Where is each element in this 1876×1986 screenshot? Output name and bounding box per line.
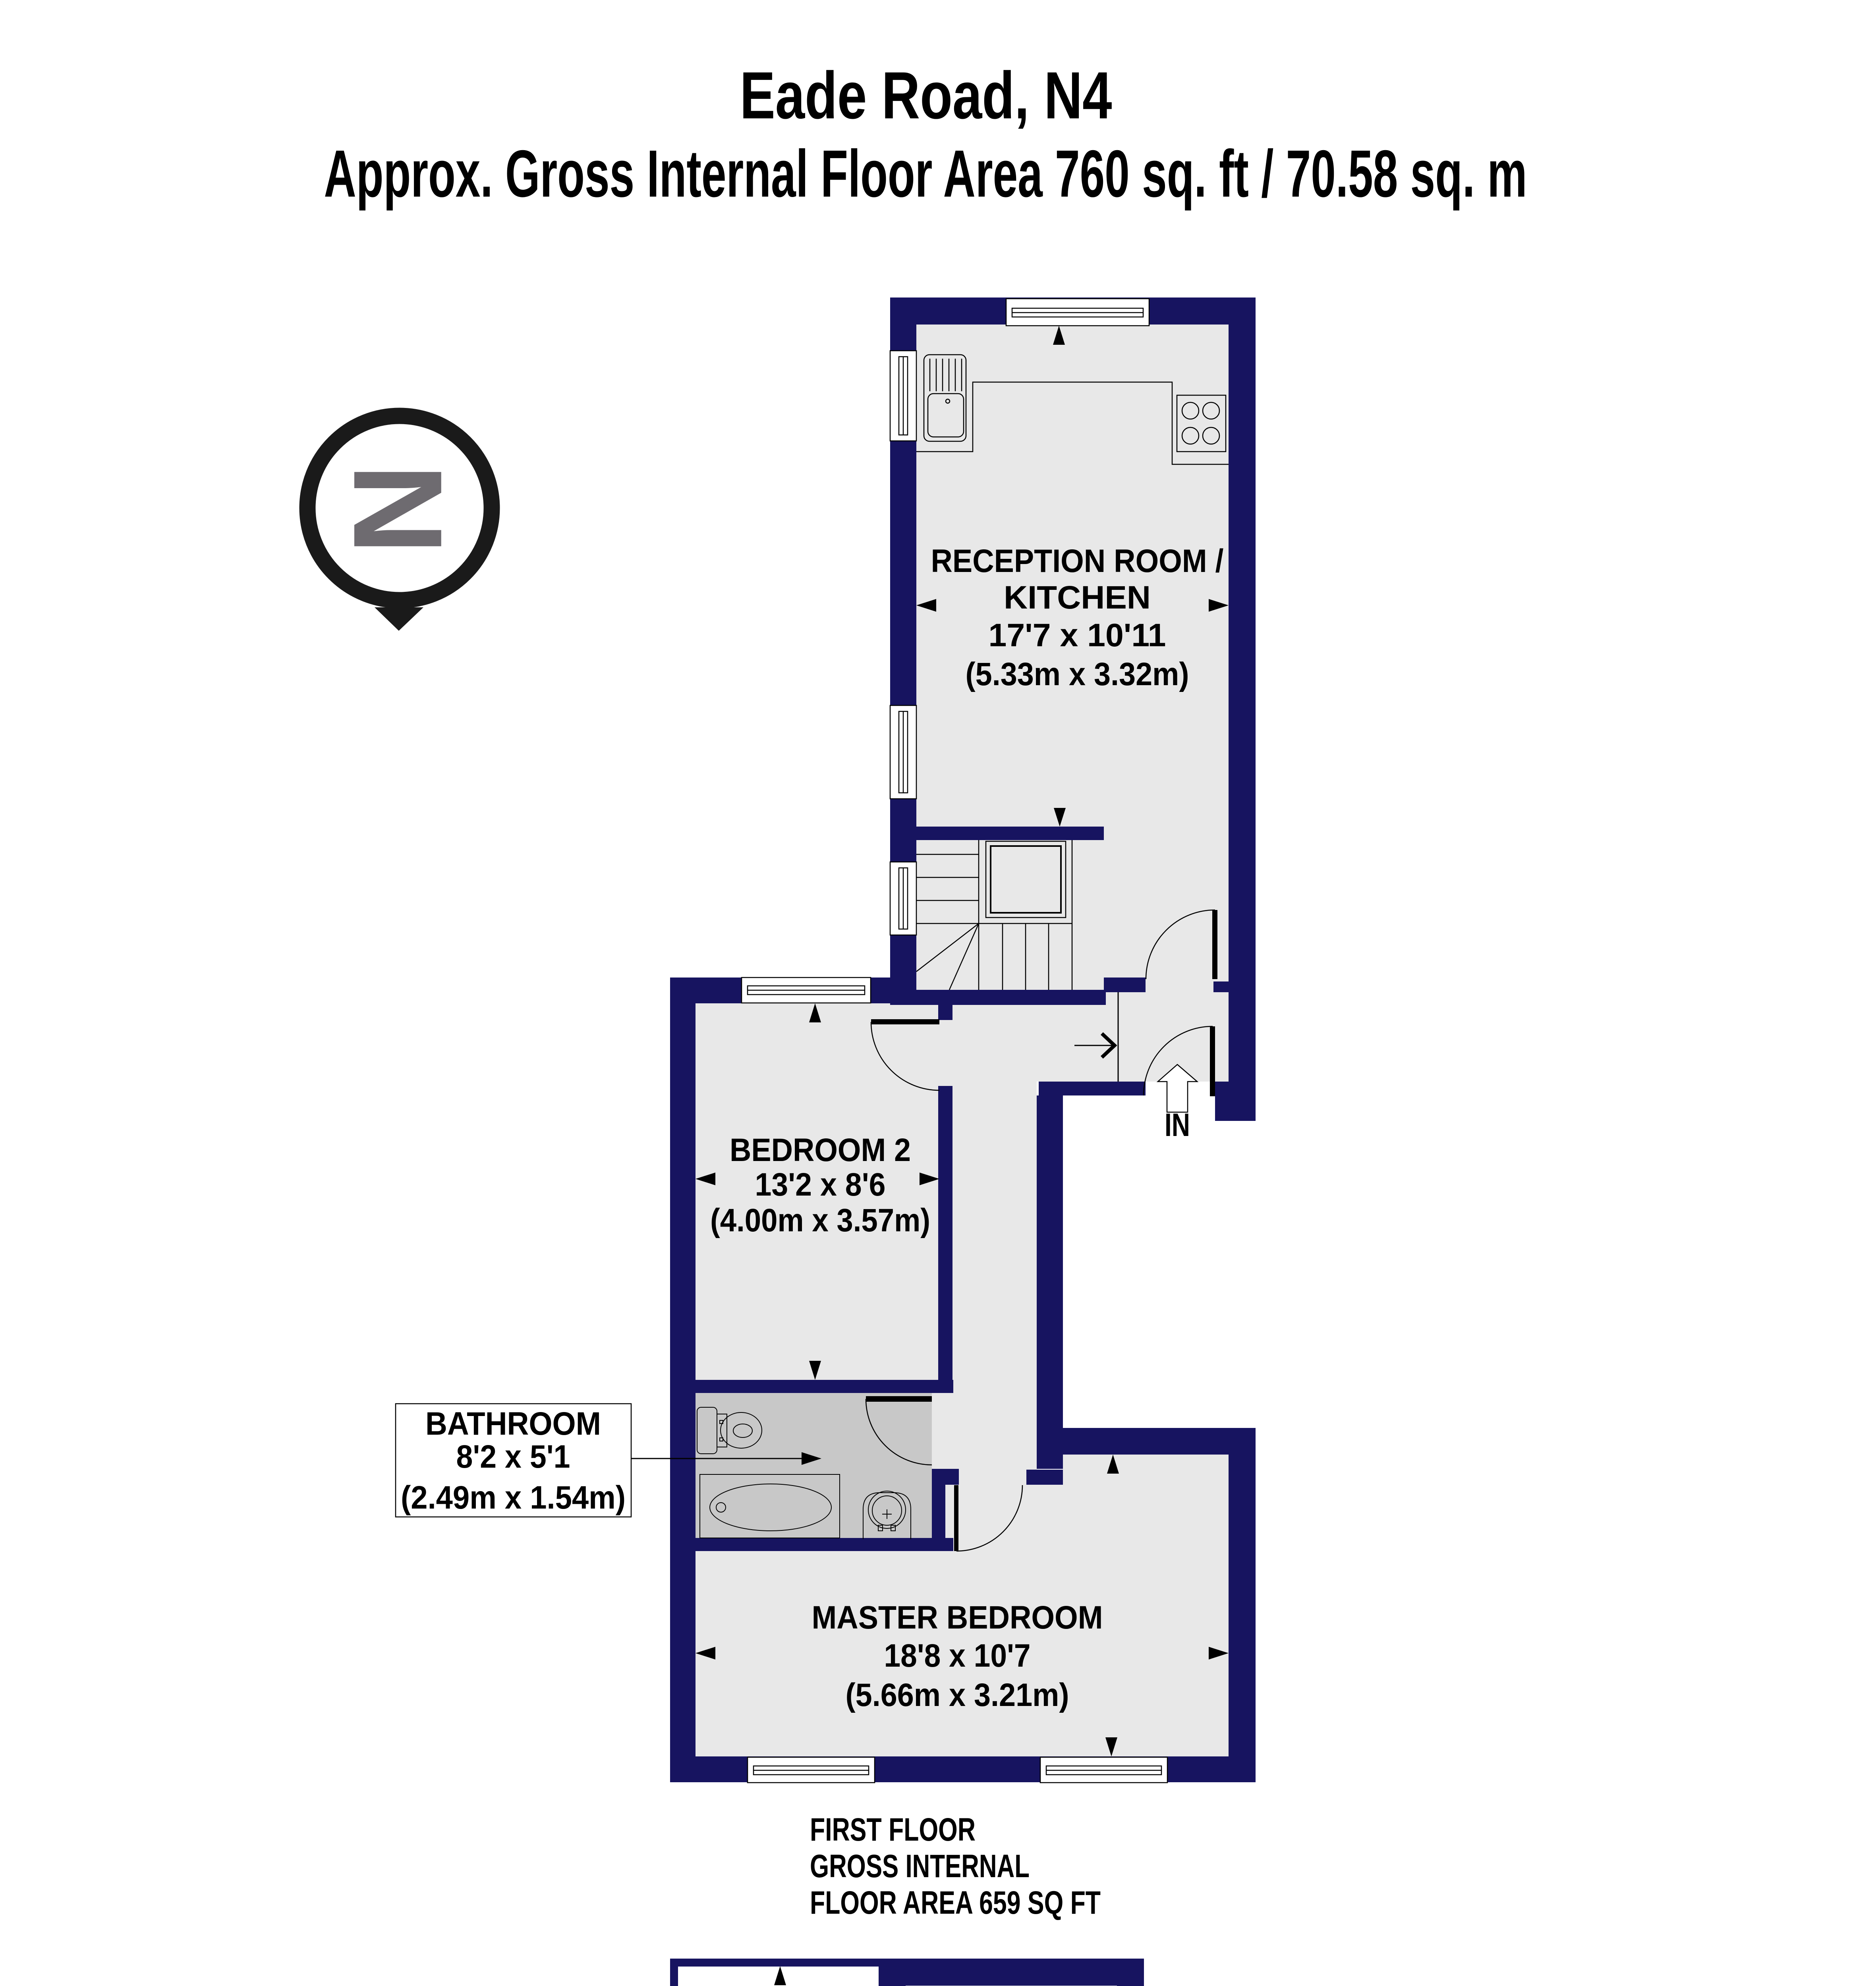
svg-text:13'2 x 8'6: 13'2 x 8'6 bbox=[755, 1167, 886, 1203]
svg-text:17'7 x 10'11: 17'7 x 10'11 bbox=[989, 617, 1166, 653]
svg-text:Approx. Gross Internal Floor A: Approx. Gross Internal Floor Area 760 sq… bbox=[324, 136, 1527, 211]
svg-text:BATHROOM: BATHROOM bbox=[425, 1406, 601, 1442]
svg-text:BEDROOM 2: BEDROOM 2 bbox=[730, 1132, 911, 1168]
svg-text:(5.33m x 3.32m): (5.33m x 3.32m) bbox=[966, 656, 1189, 692]
svg-text:(4.00m x 3.57m): (4.00m x 3.57m) bbox=[710, 1202, 930, 1238]
svg-text:IN: IN bbox=[1165, 1107, 1190, 1143]
svg-text:KITCHEN: KITCHEN bbox=[1004, 580, 1151, 616]
svg-text:GROSS INTERNAL: GROSS INTERNAL bbox=[810, 1848, 1030, 1884]
svg-text:FLOOR AREA 659 SQ FT: FLOOR AREA 659 SQ FT bbox=[810, 1885, 1101, 1921]
svg-text:8'2 x 5'1: 8'2 x 5'1 bbox=[456, 1439, 570, 1475]
svg-text:(5.66m x 3.21m): (5.66m x 3.21m) bbox=[846, 1677, 1069, 1713]
svg-text:RECEPTION ROOM /: RECEPTION ROOM / bbox=[931, 543, 1224, 579]
svg-text:N: N bbox=[327, 464, 468, 555]
svg-text:18'8 x 10'7: 18'8 x 10'7 bbox=[884, 1638, 1031, 1674]
svg-text:FIRST FLOOR: FIRST FLOOR bbox=[810, 1812, 976, 1848]
svg-text:Eade Road, N4: Eade Road, N4 bbox=[740, 58, 1112, 133]
svg-text:(2.49m x 1.54m): (2.49m x 1.54m) bbox=[401, 1480, 626, 1516]
svg-text:MASTER BEDROOM: MASTER BEDROOM bbox=[812, 1600, 1103, 1636]
